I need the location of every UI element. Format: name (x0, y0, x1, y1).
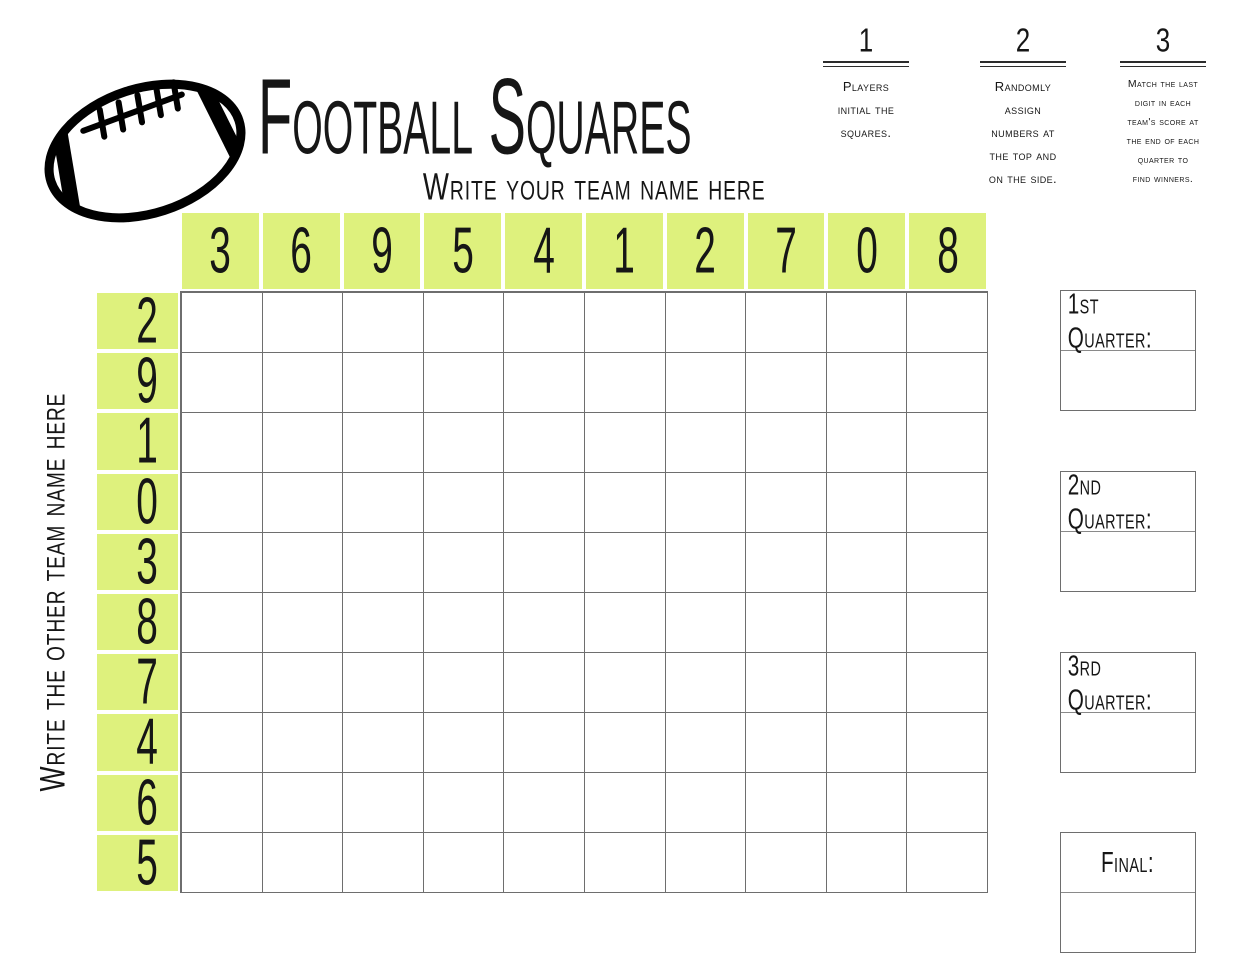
square-cell[interactable] (504, 473, 585, 533)
square-cell[interactable] (343, 713, 424, 773)
score-box-label: 2nd Quarter: (1061, 472, 1195, 532)
score-box-q2: 2nd Quarter: (1060, 471, 1196, 592)
square-cell[interactable] (666, 593, 747, 653)
instruction-step-divider (1120, 61, 1206, 67)
square-cell[interactable] (504, 773, 585, 833)
square-cell[interactable] (666, 833, 747, 893)
square-cell[interactable] (666, 713, 747, 773)
square-cell[interactable] (907, 773, 988, 833)
side-number: 4 (136, 710, 158, 775)
square-cell[interactable] (343, 833, 424, 893)
score-box-label-text: 2nd Quarter: (1068, 468, 1189, 536)
football-squares-sheet: Football Squares Write your team name he… (0, 0, 1250, 970)
top-number: 0 (856, 219, 878, 284)
score-box-label: 1st Quarter: (1061, 291, 1195, 351)
team-name-top-label-text: Write your team name here (423, 166, 766, 208)
square-cell[interactable] (746, 293, 827, 353)
square-cell[interactable] (585, 833, 666, 893)
square-cell[interactable] (827, 773, 908, 833)
instruction-step-number-text: 2 (1016, 22, 1030, 58)
square-cell[interactable] (746, 473, 827, 533)
square-cell[interactable] (263, 353, 344, 413)
square-cell[interactable] (504, 593, 585, 653)
top-number: 4 (533, 219, 555, 284)
score-box-label-text: 3rd Quarter: (1068, 649, 1189, 717)
square-cell[interactable] (182, 353, 263, 413)
square-cell[interactable] (746, 713, 827, 773)
square-cell[interactable] (424, 413, 505, 473)
square-cell[interactable] (666, 533, 747, 593)
score-box-label-text: Final: (1101, 846, 1154, 880)
top-number-cell: 4 (503, 213, 584, 289)
side-numbers-column: 2910387465 (97, 291, 178, 893)
square-cell[interactable] (504, 413, 585, 473)
side-number-cell: 9 (97, 351, 178, 411)
square-cell[interactable] (424, 713, 505, 773)
square-cell[interactable] (666, 293, 747, 353)
score-box-label: Final: (1061, 833, 1195, 893)
team-name-top-label: Write your team name here (190, 166, 998, 199)
square-cell[interactable] (585, 293, 666, 353)
square-cell[interactable] (827, 473, 908, 533)
side-number: 0 (136, 469, 158, 534)
top-number-cell: 1 (584, 213, 665, 289)
side-number-cell: 3 (97, 532, 178, 592)
top-number: 6 (290, 219, 312, 284)
square-cell[interactable] (424, 653, 505, 713)
side-number: 9 (136, 349, 158, 414)
square-cell[interactable] (907, 593, 988, 653)
square-cell[interactable] (263, 593, 344, 653)
square-cell[interactable] (907, 413, 988, 473)
top-number-cell: 2 (665, 213, 746, 289)
square-cell[interactable] (907, 533, 988, 593)
instruction-step-3: 3Match the last digit in each team's sco… (1102, 30, 1224, 189)
square-cell[interactable] (907, 713, 988, 773)
score-box-blank[interactable] (1061, 713, 1195, 771)
square-cell[interactable] (424, 473, 505, 533)
top-number: 1 (614, 219, 636, 284)
score-box-final: Final: (1060, 832, 1196, 953)
square-cell[interactable] (263, 773, 344, 833)
instruction-step-number-text: 3 (1156, 22, 1170, 58)
top-number-cell: 7 (746, 213, 827, 289)
top-number: 2 (694, 219, 716, 284)
square-cell[interactable] (907, 293, 988, 353)
square-cell[interactable] (746, 533, 827, 593)
square-cell[interactable] (907, 833, 988, 893)
square-cell[interactable] (263, 533, 344, 593)
square-cell[interactable] (263, 833, 344, 893)
square-cell[interactable] (343, 533, 424, 593)
square-cell[interactable] (666, 773, 747, 833)
square-cell[interactable] (585, 473, 666, 533)
square-cell[interactable] (585, 713, 666, 773)
squares-grid (180, 291, 988, 893)
square-cell[interactable] (263, 473, 344, 533)
square-cell[interactable] (182, 593, 263, 653)
side-number-cell: 5 (97, 833, 178, 893)
football-icon (24, 58, 266, 240)
square-cell[interactable] (343, 293, 424, 353)
team-name-side-label: Write the other team name here (37, 332, 77, 852)
square-cell[interactable] (424, 293, 505, 353)
square-cell[interactable] (746, 653, 827, 713)
side-number-cell: 0 (97, 472, 178, 532)
square-cell[interactable] (746, 413, 827, 473)
square-cell[interactable] (666, 353, 747, 413)
square-cell[interactable] (666, 653, 747, 713)
square-cell[interactable] (827, 533, 908, 593)
score-box-blank[interactable] (1061, 351, 1195, 409)
square-cell[interactable] (907, 473, 988, 533)
square-cell[interactable] (182, 293, 263, 353)
square-cell[interactable] (424, 833, 505, 893)
square-cell[interactable] (746, 353, 827, 413)
top-number-cell: 5 (422, 213, 503, 289)
square-cell[interactable] (746, 593, 827, 653)
top-number-cell: 0 (826, 213, 907, 289)
square-cell[interactable] (666, 413, 747, 473)
score-box-q3: 3rd Quarter: (1060, 652, 1196, 773)
side-number: 5 (136, 830, 158, 895)
square-cell[interactable] (182, 653, 263, 713)
instruction-step-number: 1 (806, 30, 926, 58)
square-cell[interactable] (907, 653, 988, 713)
square-cell[interactable] (343, 413, 424, 473)
square-cell[interactable] (746, 773, 827, 833)
square-cell[interactable] (182, 413, 263, 473)
square-cell[interactable] (746, 833, 827, 893)
score-box-blank[interactable] (1061, 532, 1195, 590)
square-cell[interactable] (343, 653, 424, 713)
square-cell[interactable] (585, 533, 666, 593)
square-cell[interactable] (585, 773, 666, 833)
top-number: 5 (452, 219, 474, 284)
square-cell[interactable] (263, 293, 344, 353)
square-cell[interactable] (182, 833, 263, 893)
square-cell[interactable] (666, 473, 747, 533)
top-number-cell: 6 (261, 213, 342, 289)
score-box-label-text: 1st Quarter: (1068, 287, 1189, 355)
side-number-cell: 2 (97, 291, 178, 351)
square-cell[interactable] (424, 773, 505, 833)
square-cell[interactable] (827, 833, 908, 893)
square-cell[interactable] (343, 353, 424, 413)
square-cell[interactable] (343, 593, 424, 653)
square-cell[interactable] (827, 413, 908, 473)
square-cell[interactable] (343, 773, 424, 833)
side-number-cell: 6 (97, 773, 178, 833)
side-number: 8 (136, 590, 158, 655)
instruction-step-divider (980, 61, 1066, 67)
square-cell[interactable] (504, 293, 585, 353)
page-title: Football Squares (258, 63, 877, 143)
square-cell[interactable] (827, 713, 908, 773)
page-title-text: Football Squares (258, 63, 691, 171)
instruction-step-divider (823, 61, 909, 67)
square-cell[interactable] (182, 713, 263, 773)
side-number: 1 (136, 409, 158, 474)
side-number-cell: 1 (97, 411, 178, 471)
top-number: 7 (775, 219, 797, 284)
instruction-step-number: 2 (963, 30, 1083, 58)
instruction-step-1: 1Players initial the squares. (806, 30, 926, 144)
side-number: 7 (136, 650, 158, 715)
top-number: 8 (937, 219, 959, 284)
square-cell[interactable] (504, 833, 585, 893)
square-cell[interactable] (585, 413, 666, 473)
square-cell[interactable] (504, 713, 585, 773)
side-number: 6 (136, 770, 158, 835)
side-number: 3 (136, 529, 158, 594)
team-name-side-label-text: Write the other team name here (33, 393, 73, 792)
instruction-step-2: 2Randomly assign numbers at the top and … (963, 30, 1083, 190)
square-cell[interactable] (827, 593, 908, 653)
square-cell[interactable] (343, 473, 424, 533)
square-cell[interactable] (907, 353, 988, 413)
score-box-q1: 1st Quarter: (1060, 290, 1196, 411)
square-cell[interactable] (585, 653, 666, 713)
instruction-step-number: 3 (1102, 30, 1224, 58)
top-number-cell: 8 (907, 213, 988, 289)
side-number: 2 (136, 289, 158, 354)
instruction-step-text: Randomly assign numbers at the top and o… (963, 75, 1083, 190)
instruction-step-text: Match the last digit in each team's scor… (1102, 75, 1224, 189)
square-cell[interactable] (263, 413, 344, 473)
square-cell[interactable] (504, 533, 585, 593)
square-cell[interactable] (585, 593, 666, 653)
square-cell[interactable] (182, 473, 263, 533)
square-cell[interactable] (263, 713, 344, 773)
top-number: 9 (371, 219, 393, 284)
square-cell[interactable] (827, 353, 908, 413)
side-number-cell: 7 (97, 652, 178, 712)
instruction-step-number-text: 1 (859, 22, 873, 58)
square-cell[interactable] (424, 593, 505, 653)
square-cell[interactable] (182, 533, 263, 593)
square-cell[interactable] (585, 353, 666, 413)
square-cell[interactable] (263, 653, 344, 713)
square-cell[interactable] (827, 293, 908, 353)
instruction-step-text: Players initial the squares. (806, 75, 926, 144)
side-number-cell: 4 (97, 712, 178, 772)
top-number-cell: 9 (342, 213, 423, 289)
square-cell[interactable] (424, 353, 505, 413)
score-box-label: 3rd Quarter: (1061, 653, 1195, 713)
side-number-cell: 8 (97, 592, 178, 652)
top-numbers-row: 3695412708 (180, 213, 988, 289)
square-cell[interactable] (504, 653, 585, 713)
square-cell[interactable] (504, 353, 585, 413)
score-box-blank[interactable] (1061, 893, 1195, 951)
square-cell[interactable] (424, 533, 505, 593)
square-cell[interactable] (182, 773, 263, 833)
square-cell[interactable] (827, 653, 908, 713)
